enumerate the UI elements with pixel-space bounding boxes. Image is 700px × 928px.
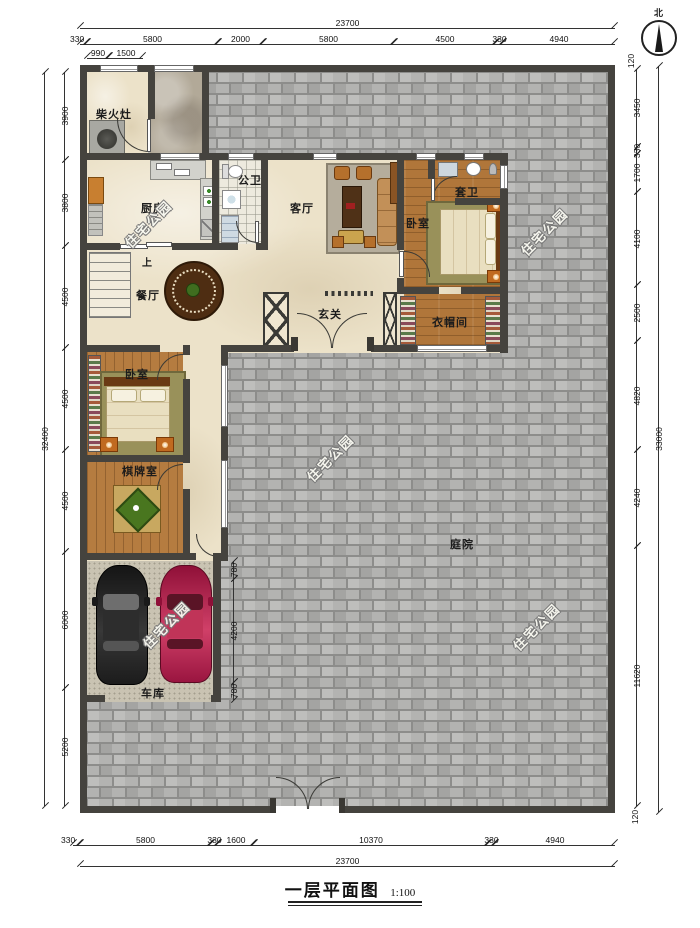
dim-segment: 780 bbox=[233, 682, 234, 700]
stove-burner-circle bbox=[97, 129, 117, 149]
pillow bbox=[140, 389, 166, 402]
room-label-bedroom-2: 卧室 bbox=[125, 366, 149, 382]
wall bbox=[608, 65, 615, 813]
wall bbox=[80, 553, 196, 560]
dish-rack bbox=[174, 169, 190, 176]
wall bbox=[345, 806, 615, 813]
staircase bbox=[89, 252, 131, 318]
dim-segment: 780 bbox=[233, 561, 234, 579]
wall bbox=[80, 695, 105, 702]
wall bbox=[337, 153, 416, 160]
wall bbox=[80, 243, 120, 250]
dish-rack bbox=[156, 163, 172, 170]
gate-jamb bbox=[270, 798, 276, 813]
floor-plan: 柴火灶 厨房 公卫 客厅 卧室 套卫 餐厅 玄关 衣帽间 卧室 棋牌室 车库 庭… bbox=[0, 0, 700, 928]
sliding-door bbox=[146, 242, 172, 247]
wall bbox=[212, 243, 238, 250]
washbasin bbox=[222, 190, 241, 209]
wall bbox=[211, 695, 221, 702]
dim-segment: 6000 bbox=[64, 552, 65, 688]
dim-segment: 3900 bbox=[64, 72, 65, 160]
plan-title-text: 一层平面图 bbox=[285, 881, 380, 900]
car-mirror bbox=[144, 597, 150, 606]
wall bbox=[183, 345, 190, 355]
wall bbox=[397, 153, 404, 250]
wall bbox=[212, 160, 219, 250]
room-label-dining: 餐厅 bbox=[136, 287, 160, 303]
dim-segment: 4500 bbox=[64, 246, 65, 348]
wardrobe bbox=[485, 296, 501, 345]
wall bbox=[222, 345, 294, 352]
dim-segment: 3450 bbox=[636, 69, 637, 147]
title-underline bbox=[288, 905, 422, 906]
room-label-firewood-stove: 柴火灶 bbox=[96, 106, 132, 122]
shoe-cabinet-dashed bbox=[325, 291, 373, 296]
fridge bbox=[88, 177, 104, 204]
wardrobe bbox=[400, 296, 416, 345]
wall bbox=[148, 72, 155, 119]
armchair bbox=[356, 166, 372, 180]
car-black-roof bbox=[103, 610, 139, 640]
window bbox=[228, 153, 254, 160]
dim-left-total: 32400 bbox=[44, 72, 45, 806]
window bbox=[313, 153, 337, 160]
dim-segment: 2500 bbox=[636, 285, 637, 341]
wall bbox=[80, 345, 160, 352]
wall bbox=[461, 287, 503, 294]
gate-jamb bbox=[339, 798, 345, 813]
wall bbox=[183, 489, 190, 555]
wall bbox=[371, 345, 417, 352]
dim-segment: 3800 bbox=[64, 160, 65, 246]
wall bbox=[500, 153, 508, 165]
room-label-courtyard: 庭院 bbox=[450, 536, 474, 552]
kitchen-shelf bbox=[88, 204, 103, 236]
window bbox=[417, 345, 487, 352]
wall bbox=[80, 153, 160, 160]
entry-jamb bbox=[367, 337, 374, 351]
structural-column bbox=[383, 292, 397, 348]
dim-segment: 4100 bbox=[636, 192, 637, 285]
table-decor bbox=[346, 203, 355, 209]
dim-segment: 4820 bbox=[636, 341, 637, 450]
room-label-garage: 车库 bbox=[141, 685, 165, 701]
dim-segment: 4200 bbox=[233, 579, 234, 682]
window bbox=[221, 460, 228, 528]
dim-label: 120 bbox=[626, 54, 636, 68]
door-leaf bbox=[399, 251, 404, 277]
dim-segment: 11620 bbox=[636, 546, 637, 806]
window bbox=[500, 165, 508, 189]
wall bbox=[183, 379, 190, 463]
nightstand bbox=[156, 437, 174, 452]
room-label-foyer: 玄关 bbox=[318, 306, 342, 322]
dim-label: 120 bbox=[630, 810, 640, 824]
wall bbox=[202, 72, 209, 160]
door-leaf bbox=[147, 119, 151, 152]
room-label-cloakroom: 衣帽间 bbox=[432, 314, 468, 330]
wall bbox=[436, 153, 464, 160]
wall bbox=[221, 345, 228, 365]
wall bbox=[209, 153, 228, 160]
door-leaf bbox=[431, 176, 435, 201]
wall bbox=[397, 287, 439, 294]
window bbox=[464, 153, 484, 160]
car-black-rear-glass bbox=[103, 641, 139, 651]
structural-column bbox=[263, 292, 289, 348]
window bbox=[100, 65, 138, 72]
ensuite-toilet bbox=[466, 162, 481, 176]
stairs-up-label: 上 bbox=[142, 254, 153, 269]
dim-segment: 5800 bbox=[87, 44, 218, 45]
dim-segment: 5800 bbox=[263, 44, 394, 45]
title-underline bbox=[288, 901, 422, 903]
room-label-bedroom-1: 卧室 bbox=[406, 215, 430, 231]
wall bbox=[500, 189, 508, 353]
room-label-game-room: 棋牌室 bbox=[122, 463, 158, 479]
back-porch-floor bbox=[150, 72, 202, 153]
side-stool bbox=[332, 236, 344, 248]
dim-segment: 4500 bbox=[64, 348, 65, 450]
pillow bbox=[485, 239, 496, 265]
dim-segment: 4500 bbox=[394, 44, 496, 45]
entry-jamb bbox=[291, 337, 298, 351]
dim-segment: 5800 bbox=[80, 845, 211, 846]
dim-right-total: 33000 bbox=[658, 66, 659, 812]
car-red-rear-glass bbox=[167, 639, 203, 649]
dim-segment: 1500 bbox=[109, 58, 143, 59]
wall bbox=[87, 455, 184, 462]
wall bbox=[261, 153, 268, 250]
armchair bbox=[334, 166, 350, 180]
dim-segment: 1600 bbox=[218, 845, 254, 846]
dim-top-total: 23700 bbox=[80, 28, 615, 29]
car-mirror bbox=[156, 597, 162, 606]
window bbox=[154, 65, 194, 72]
dim-segment: 1700 bbox=[636, 154, 637, 192]
wall bbox=[80, 806, 270, 813]
wall bbox=[213, 553, 221, 702]
window bbox=[416, 153, 436, 160]
door-leaf bbox=[255, 221, 259, 243]
dim-bottom-total: 23700 bbox=[80, 866, 615, 867]
north-needle bbox=[655, 24, 663, 52]
pillow bbox=[111, 389, 137, 402]
wall bbox=[487, 345, 508, 352]
bath-cabinet bbox=[221, 215, 239, 243]
wall bbox=[221, 528, 228, 561]
side-stool bbox=[364, 236, 376, 248]
ensuite-washbasin bbox=[438, 162, 458, 177]
north-label: 北 bbox=[654, 6, 663, 19]
pillow bbox=[485, 213, 496, 239]
car-mirror bbox=[92, 597, 98, 606]
lazy-susan bbox=[186, 283, 200, 297]
mahjong-table-dot bbox=[133, 505, 139, 511]
shower-head bbox=[489, 163, 497, 175]
room-label-living-room: 客厅 bbox=[290, 200, 314, 216]
plan-title: 一层平面图 1:100 bbox=[0, 876, 700, 901]
room-label-guest-bath: 公卫 bbox=[238, 172, 262, 188]
nightstand bbox=[100, 437, 118, 452]
floorplan-page: { "title": {"text": "一层平面图", "scale": "1… bbox=[0, 0, 700, 928]
window bbox=[160, 153, 200, 160]
wall bbox=[221, 427, 228, 460]
plan-title-scale: 1:100 bbox=[390, 887, 415, 899]
wall bbox=[200, 153, 209, 160]
car-black-windshield bbox=[103, 594, 139, 610]
window bbox=[221, 365, 228, 427]
dim-segment: 10370 bbox=[254, 845, 488, 846]
dim-segment: 4500 bbox=[64, 450, 65, 552]
room-label-ensuite: 套卫 bbox=[455, 184, 479, 200]
dim-segment: 4940 bbox=[495, 845, 615, 846]
dim-segment: 4940 bbox=[503, 44, 615, 45]
dim-segment: 5200 bbox=[64, 688, 65, 806]
dim-segment: 2000 bbox=[218, 44, 263, 45]
dim-segment: 4240 bbox=[636, 450, 637, 546]
